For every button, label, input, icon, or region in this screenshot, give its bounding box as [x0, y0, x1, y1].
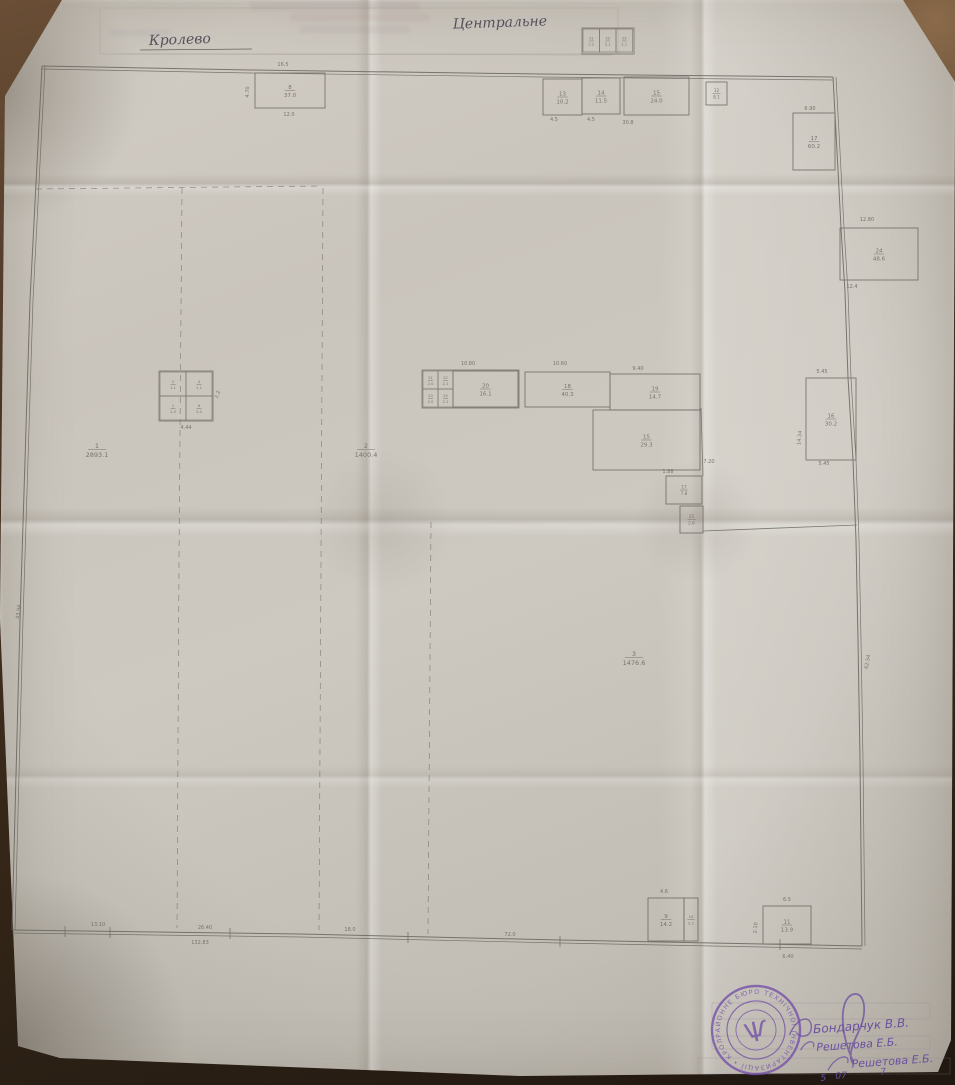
cell-outline: [186, 396, 212, 420]
cell-outline: [438, 389, 453, 407]
room-area: 37.0: [284, 93, 297, 99]
dimension-label: 132,83: [191, 940, 209, 946]
dimension-label: 6.40: [782, 954, 793, 960]
room-area: 48.6: [873, 257, 886, 263]
room-area: 1.0: [170, 410, 176, 414]
cell-outline: [583, 29, 600, 52]
dimension-label: 72.0: [504, 932, 515, 938]
room-area: 60.2: [808, 144, 820, 150]
room-area: 13.9: [781, 928, 794, 934]
partition-dashed-line: [177, 188, 182, 928]
room-number: 12: [714, 88, 720, 93]
room-number: 13: [559, 92, 566, 98]
room-area: 11.5: [595, 99, 608, 105]
room-area: 40.3: [561, 392, 574, 398]
room-number: 18: [564, 384, 571, 390]
signature-num2: 07: [835, 1071, 847, 1082]
room-area: 1.1: [196, 386, 202, 390]
room-area: 2.0: [428, 400, 434, 404]
cell-outline: [186, 372, 212, 396]
room-area: 29.3: [640, 443, 653, 449]
signature-flourish-icon: [827, 1057, 848, 1071]
partition-dashed-line: [428, 522, 431, 934]
signature-line2: Решетова Е.Б.: [816, 1035, 898, 1054]
room-number: 25: [443, 394, 448, 398]
room-area: 2.1: [605, 43, 611, 47]
room-number: 16: [828, 414, 835, 420]
room-number: 21: [428, 376, 433, 380]
room-area: 2.1: [443, 400, 449, 404]
floor-plan-drawing: Центральне Кролево 837.01310.21411.51524…: [0, 0, 955, 1085]
room-area: 2893.1: [86, 451, 109, 459]
room-number: 20: [482, 384, 489, 390]
room-number: 10: [689, 914, 694, 919]
dimension-label: 4.5: [550, 117, 558, 123]
room-number: 8: [288, 85, 292, 91]
cell-outline: [600, 29, 617, 52]
dimension-label: 4.44: [180, 425, 191, 431]
dimension-label: 10.60: [553, 361, 567, 367]
room-number: 22: [605, 37, 610, 41]
room-number: 1: [95, 442, 99, 450]
room-area: 16.1: [479, 392, 491, 398]
wall-line: [12, 930, 862, 946]
dimension-label: 26.40: [198, 925, 212, 931]
wall-inner-line: [15, 66, 45, 930]
signature-line3: Решетова Е.Б.: [851, 1052, 933, 1071]
dimension-label: 4.6: [660, 889, 668, 895]
wall-inner-line: [12, 933, 862, 949]
room-area: 2.2: [588, 43, 594, 47]
dimension-label: 7.20: [703, 459, 714, 465]
room-number: 15: [653, 91, 660, 97]
dimension-label: 14.34: [796, 431, 803, 446]
room-number: 2: [364, 442, 368, 450]
stamp-ring-text: РАЙОННЕ БЮРО ТЕХНІЧНОЇ ІНВЕНТАРИЗАЦІЇ • …: [0, 8, 807, 1085]
dimension-label: 16.5: [277, 62, 288, 68]
room-number: 2: [172, 380, 174, 384]
cell-outline: [438, 371, 453, 389]
stamp: РАЙОННЕ БЮРО ТЕХНІЧНОЇ ІНВЕНТАРИЗАЦІЇ • …: [0, 7, 808, 1085]
room-area: 2.1: [443, 382, 449, 386]
room-number: 17: [681, 485, 687, 490]
signature-num3: 7: [880, 1067, 887, 1077]
room-number: 4: [198, 380, 201, 384]
dimension-label: 12.4: [846, 284, 857, 290]
room-number: 9: [664, 914, 668, 920]
partition-dashed-line: [319, 188, 323, 930]
header-subtitle: Кролево: [148, 31, 212, 49]
dimension-label: 4.5: [587, 117, 595, 123]
room-number: 17: [811, 136, 818, 142]
dimension-label: 13.10: [91, 922, 105, 928]
room-area: 10.2: [556, 100, 568, 106]
cell-outline: [160, 372, 186, 396]
room-area: 30.2: [825, 422, 837, 428]
room-area: 14.2: [660, 922, 672, 928]
cell-outline: [160, 396, 186, 420]
dimension-label: 18.0: [344, 927, 355, 933]
dimension-label: 5.45: [818, 461, 829, 467]
dimension-label: 5.45: [816, 369, 827, 375]
wall-segment: [703, 525, 857, 531]
wall-segment: [701, 408, 703, 476]
room-number: 1: [172, 404, 174, 408]
room-area: 2.0: [196, 410, 202, 414]
signature-num1: 5: [820, 1073, 827, 1083]
dimension-label: 62.54: [864, 654, 872, 669]
dimension-label: 1.88: [662, 469, 673, 475]
plan-linework: 837.01310.21411.51524.0128.11760.22448.6…: [12, 28, 918, 960]
header-title: Центральне: [452, 13, 547, 32]
cell-outline: [423, 371, 438, 389]
cell-outline: [423, 389, 438, 407]
room-area: 2.0: [428, 382, 434, 386]
dimension-label: 6.90: [804, 106, 815, 112]
dimension-label: 43.94: [15, 604, 23, 619]
dimension-label: 4.70: [245, 86, 251, 97]
room-area: 7.8: [681, 491, 688, 496]
room-number: 24: [876, 249, 883, 255]
dimension-label: 30.8: [622, 120, 633, 126]
room-number: 15: [643, 435, 650, 441]
dimension-label: 12.0: [283, 112, 294, 118]
room-number: 14: [598, 91, 605, 97]
dimension-label: 2.10: [753, 922, 760, 934]
room-area: 1.1: [170, 386, 176, 390]
room-number: 3: [632, 650, 636, 658]
room-area: 2.6: [688, 521, 695, 526]
dimension-label: 9.40: [632, 366, 643, 372]
dimension-label: 10.80: [461, 361, 475, 367]
room-number: 6: [198, 404, 201, 408]
room-area: 14.7: [649, 395, 662, 401]
room-number: 23: [622, 37, 627, 41]
ghost-print-smudge: [110, 2, 430, 36]
wall-inner-line: [42, 69, 833, 80]
dimension-label: 6.5: [783, 897, 791, 903]
room-area: 2.1: [688, 920, 695, 925]
dimension-label: 12.80: [860, 217, 874, 223]
room-number: 23: [428, 394, 433, 398]
room-area: 1476.6: [623, 659, 646, 667]
trident-icon: Ѱ: [742, 1015, 771, 1050]
room-area: 8.1: [713, 95, 720, 100]
room-area: 2.1: [621, 43, 627, 47]
room-number: 11: [784, 920, 791, 926]
room-number: 19: [652, 387, 659, 393]
room-area: 1400.4: [355, 451, 378, 459]
dimension-label: 2.2: [214, 390, 222, 400]
room-number: 25: [689, 514, 695, 519]
partition-dashed-line: [36, 186, 322, 189]
room-number: 22: [443, 376, 448, 380]
room-number: 21: [589, 37, 594, 41]
photo-background: { "header": { "title": "Центральне", "su…: [0, 0, 955, 1085]
room-area: 24.0: [650, 99, 663, 105]
subtitle-underline: [140, 49, 252, 50]
